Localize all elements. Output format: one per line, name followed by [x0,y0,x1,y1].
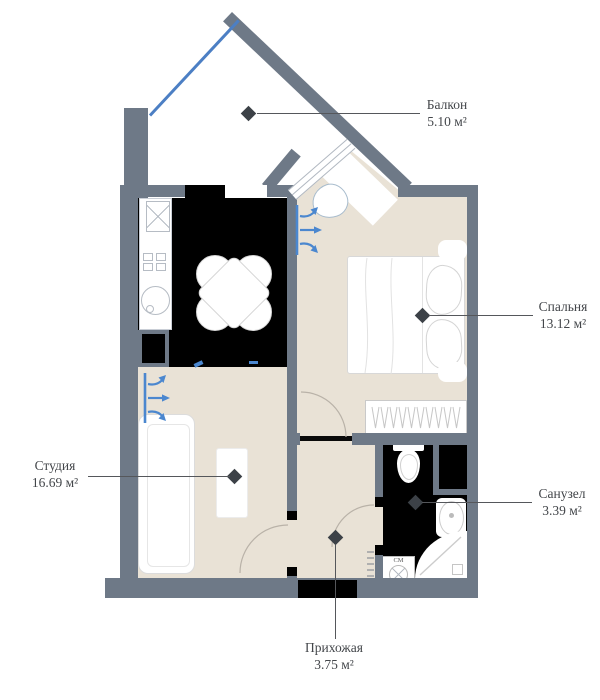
hallway-rack-dash [367,563,374,565]
bathroom-sink-basin [439,501,464,535]
stove-burner-icon [143,263,153,271]
studio-door-jamb [287,567,297,576]
nightstand [438,362,467,382]
bathroom-room-area: 3.39 м² [518,502,600,519]
toilet-seat [400,454,418,480]
kitchen-balcony-opening [185,185,225,199]
toilet [393,442,424,484]
stove-burner-icon [156,263,166,271]
kitchen-sink-drain [146,305,154,313]
entrance-door [298,580,357,598]
balcony-marker-diamond [241,106,257,122]
kitchen-sink [141,286,170,315]
bathroom-leader-line [422,502,532,503]
studio-label: Студия 16.69 м² [3,457,107,491]
kitchen-window-opening [225,185,267,197]
wall-left-main [120,185,138,580]
bathroom-door-jamb [375,545,383,555]
bedroom-door-threshold [300,436,352,441]
bathroom-door-opening [375,506,383,546]
bedroom-room-name: Спальня [519,298,600,315]
hallway-room-name: Прихожая [282,639,386,656]
bathroom-room-name: Санузел [518,485,600,502]
balcony-room-area: 5.10 м² [395,113,499,130]
hallway-leader-line [335,545,336,639]
studio-door-opening [287,519,297,568]
wall-bedroom-top [398,185,467,197]
bathroom-label: Санузел 3.39 м² [518,485,600,519]
ventilation-shaft-bathroom [433,445,467,495]
wall-bottom [105,578,478,598]
hallway-rack-dash [367,569,374,571]
bedroom-room-area: 13.12 м² [519,315,600,332]
partition-tick-icon [249,361,258,364]
studio-room-area: 16.69 м² [3,474,107,491]
sofa [138,414,195,574]
wall-kitchen-top-stub [148,185,185,197]
balcony-label: Балкон 5.10 м² [395,96,499,130]
bedroom-label: Спальня 13.12 м² [519,298,600,332]
hallway-rack-dash [367,551,374,553]
stove-burner-icon [143,253,153,261]
hallway-rack-dash [367,557,374,559]
studio-leader-line [88,476,230,477]
bedroom-leader-line [429,315,533,316]
coffee-table [216,448,248,518]
studio-door-jamb [287,511,297,520]
shower-drain [452,564,463,575]
airflow-icon [294,202,334,258]
balcony-room-name: Балкон [395,96,499,113]
hallway-label: Прихожая 3.75 м² [282,639,386,673]
balcony-window-glazing [149,19,240,116]
ventilation-duct-kitchen [138,330,169,367]
hallway-room-area: 3.75 м² [282,656,386,673]
sofa-cushion [147,424,190,567]
floor-plan-canvas: СМ [0,0,600,700]
nightstand [438,240,467,260]
studio-room-name: Студия [3,457,107,474]
washing-machine-label: СМ [383,557,414,564]
pillow [425,264,464,316]
bed-blanket [348,257,423,373]
bathroom-door-jamb [375,497,383,507]
airflow-icon [142,370,182,426]
hallway-rack-dash [367,575,374,577]
toilet-bowl [397,449,420,483]
wardrobe [365,400,467,435]
stove-burner-icon [156,253,166,261]
wall-right [467,185,478,598]
hallway-floor [297,445,375,580]
kitchen-cabinet-icon [146,201,170,232]
bathroom-sink-drain [449,513,454,518]
